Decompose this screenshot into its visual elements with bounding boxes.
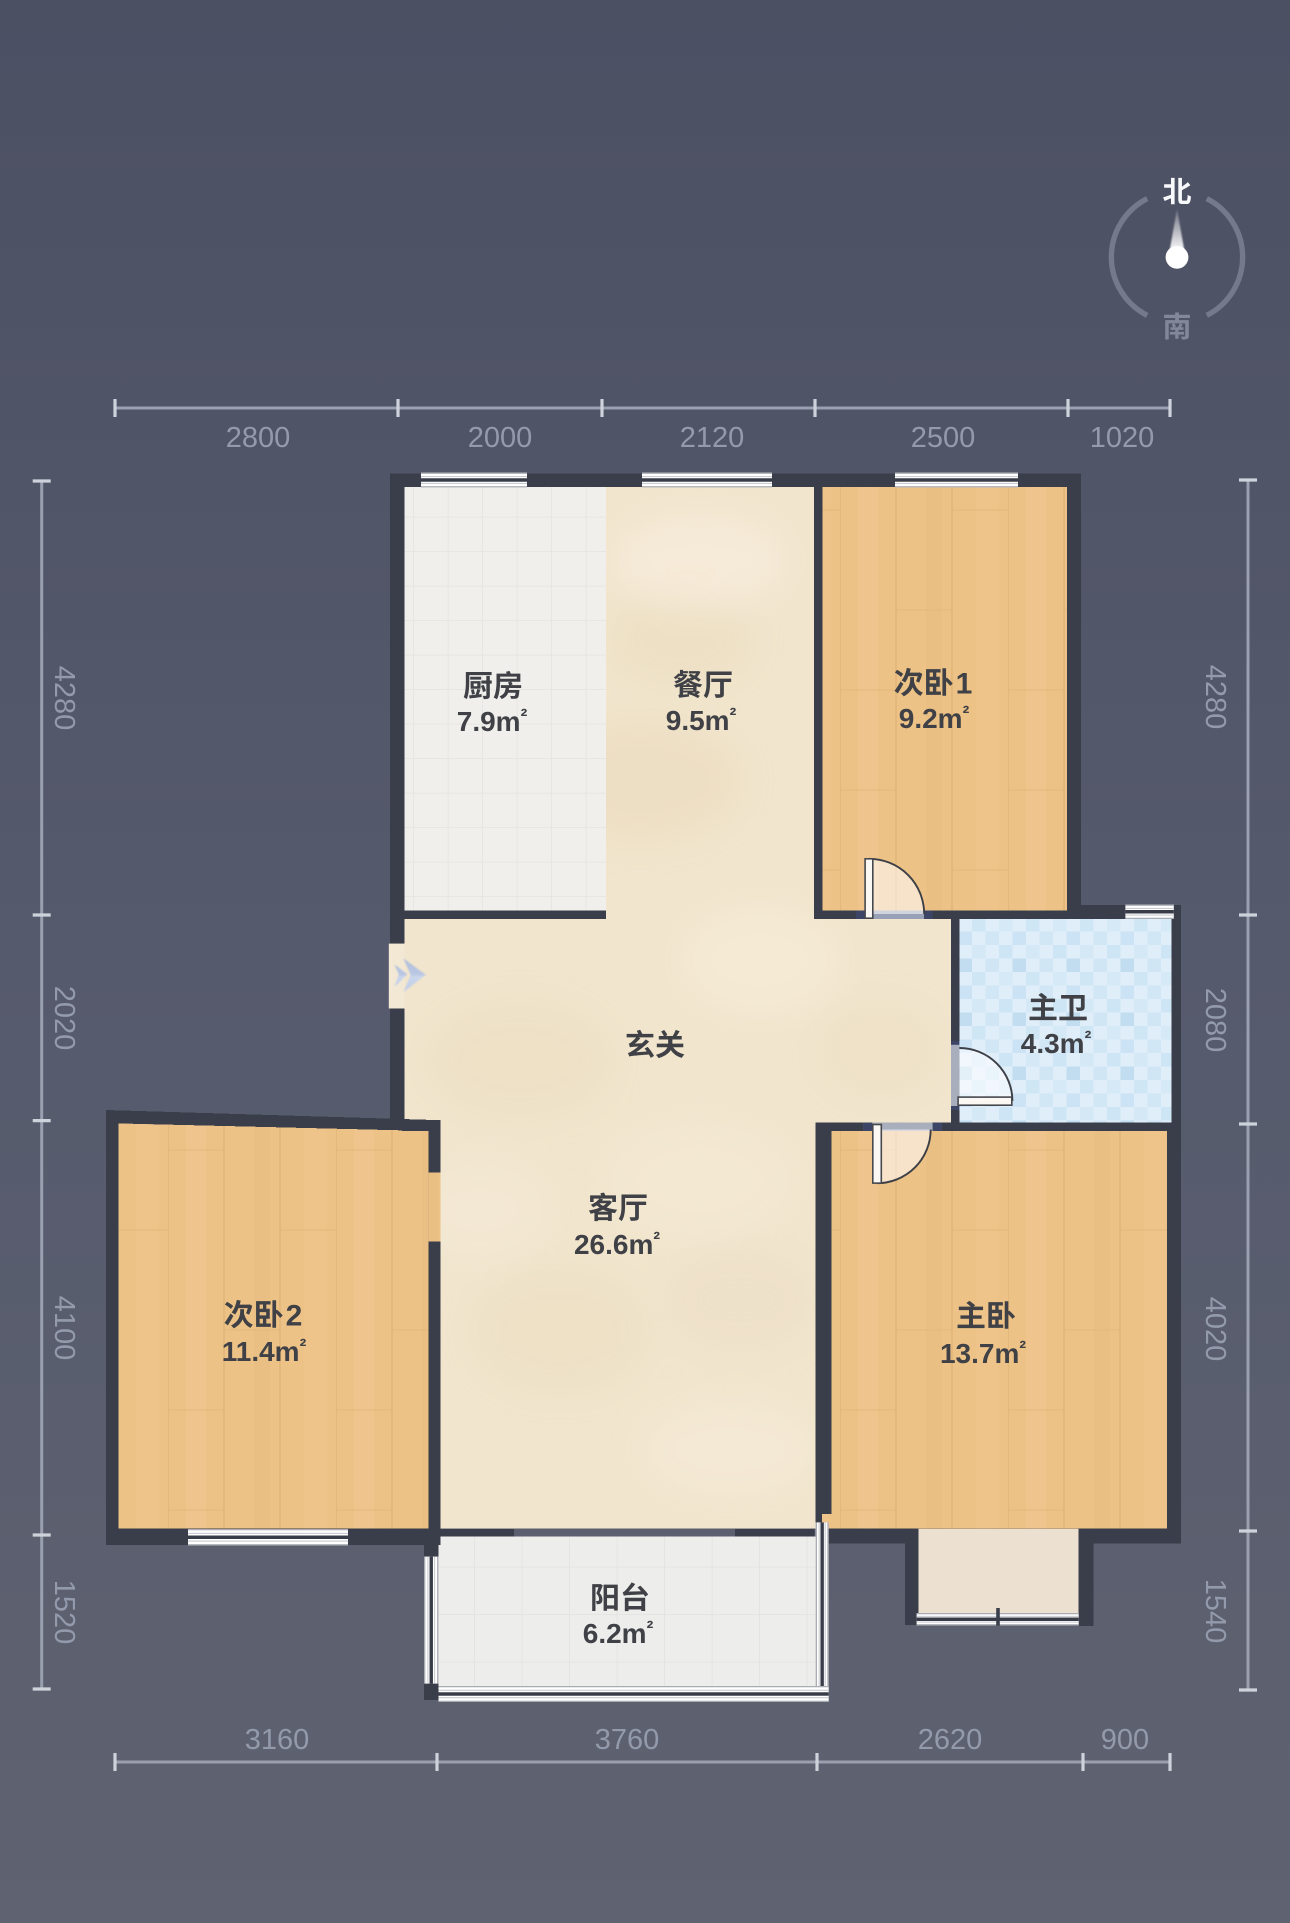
- svg-text:3760: 3760: [595, 1724, 660, 1756]
- svg-text:2020: 2020: [48, 986, 80, 1051]
- svg-text:7.9m²: 7.9m²: [457, 706, 528, 737]
- svg-text:2120: 2120: [680, 422, 745, 454]
- svg-text:1520: 1520: [48, 1580, 80, 1645]
- svg-text:1: 1: [956, 667, 973, 700]
- svg-text:1020: 1020: [1090, 422, 1155, 454]
- svg-text:2620: 2620: [918, 1724, 983, 1756]
- svg-text:900: 900: [1101, 1724, 1149, 1756]
- svg-text:4020: 4020: [1199, 1297, 1231, 1362]
- svg-text:11.4m²: 11.4m²: [222, 1336, 307, 1367]
- svg-text:2500: 2500: [911, 422, 976, 454]
- svg-text:4.3m²: 4.3m²: [1021, 1028, 1092, 1059]
- svg-text:26.6m²: 26.6m²: [574, 1229, 660, 1260]
- svg-text:13.7m²: 13.7m²: [940, 1338, 1026, 1369]
- svg-text:3160: 3160: [245, 1724, 310, 1756]
- svg-text:6.2m²: 6.2m²: [583, 1618, 654, 1649]
- svg-text:4280: 4280: [1199, 665, 1231, 730]
- svg-text:2080: 2080: [1199, 988, 1231, 1053]
- svg-text:4100: 4100: [48, 1296, 80, 1361]
- svg-text:2800: 2800: [226, 422, 291, 454]
- svg-text:2000: 2000: [468, 422, 533, 454]
- svg-text:9.5m²: 9.5m²: [666, 705, 737, 736]
- svg-text:4280: 4280: [48, 666, 80, 731]
- svg-text:1540: 1540: [1199, 1579, 1231, 1644]
- svg-text:2: 2: [286, 1299, 303, 1332]
- svg-text:9.2m²: 9.2m²: [899, 703, 970, 734]
